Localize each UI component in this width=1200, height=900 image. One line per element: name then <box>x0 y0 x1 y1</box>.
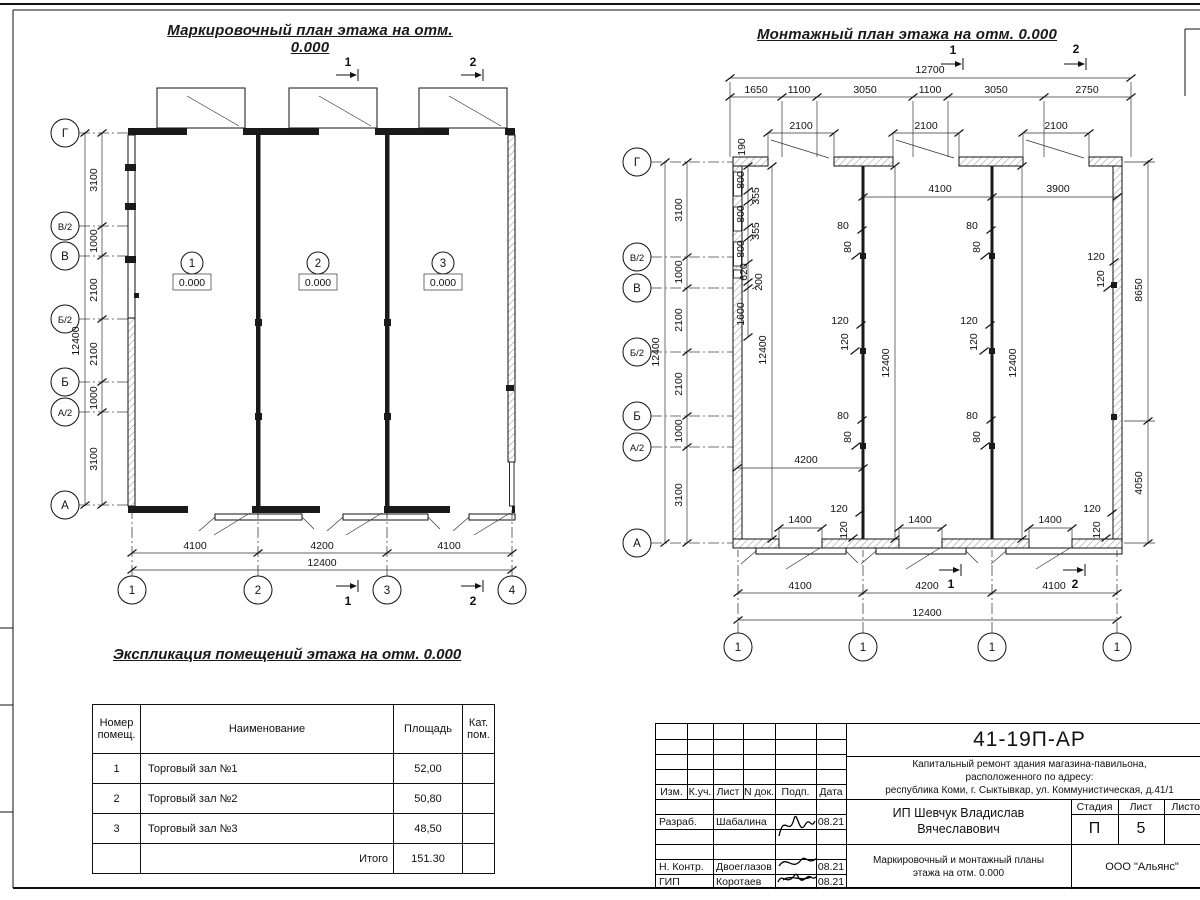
role-label: ГИП <box>656 874 713 889</box>
dim-label: 1400 <box>1038 514 1062 526</box>
dim-label: 200 <box>753 273 765 291</box>
sheet-value: 5 <box>1118 814 1164 844</box>
canopies <box>157 88 507 128</box>
dim-label: 355 <box>750 222 762 240</box>
col-data: Дата <box>816 784 846 799</box>
room-name-cell: Торговый зал №3 <box>141 814 394 844</box>
stage-value: П <box>1071 814 1118 844</box>
table-header-row: Номер помещ. Наименование Площадь Кат. п… <box>93 705 495 754</box>
col-header-number: Номер помещ. <box>93 705 141 754</box>
dim-label: 12400 <box>70 326 82 355</box>
dim-label: 2100 <box>673 372 685 396</box>
axis-label: 2 <box>255 585 261 597</box>
dim-label: 4100 <box>788 580 812 592</box>
dim-label: 4100 <box>928 183 952 195</box>
dim-label: 12700 <box>915 64 944 76</box>
dim-label: 4050 <box>1133 471 1145 495</box>
room-elevation: 0.000 <box>305 277 331 289</box>
title-block: Изм. К.уч. Лист N док. Подп. Дата Разраб… <box>655 723 1200 888</box>
right-dimensions: 8650 4050 <box>1124 159 1155 547</box>
grid-line <box>656 754 846 755</box>
description-line: Капитальный ремонт здания магазина-павил… <box>912 758 1146 771</box>
dim-label: 2100 <box>789 120 813 132</box>
total-label-cell: Итого <box>141 844 394 874</box>
section-label: 1 <box>345 55 352 69</box>
room-number: 2 <box>315 258 321 270</box>
section-label: 1 <box>950 43 957 57</box>
axis-label: В <box>633 283 641 295</box>
dim-label: 1400 <box>788 514 812 526</box>
signature <box>776 806 816 842</box>
dim-label: 120 <box>830 503 848 515</box>
room-num-cell: 1 <box>93 754 141 784</box>
dim-label: 4200 <box>915 580 939 592</box>
axis-label: В <box>61 251 69 263</box>
room-elevation: 0.000 <box>430 277 456 289</box>
dim-label: 1400 <box>908 514 932 526</box>
dim-label: 2750 <box>1075 84 1099 96</box>
axis-label: 1 <box>735 642 741 654</box>
dim-label: 800 <box>735 171 747 189</box>
dim-label: 2100 <box>1044 120 1068 132</box>
dim-label: 120 <box>1087 251 1105 263</box>
dim-label: 3100 <box>673 483 685 507</box>
dim-label: 12400 <box>880 348 892 377</box>
table-row: 2 Торговый зал №2 50,80 <box>93 784 495 814</box>
company-name: ООО "Альянс" <box>1071 844 1200 889</box>
grid-line <box>656 799 846 800</box>
dim-label: 80 <box>971 431 983 443</box>
walls <box>125 128 515 513</box>
axis-label: А <box>633 538 641 550</box>
dim-label: 3100 <box>673 198 685 222</box>
sheet-title: Маркировочный и монтажный планы этажа на… <box>846 844 1071 889</box>
column-dimensions: 4100 4200 4100 12400 1 1 1 1 <box>724 580 1131 661</box>
client-name: ИП Шевчук Владислав Вячеславович <box>846 799 1071 844</box>
dim-label: 190 <box>736 138 748 156</box>
dim-label: 120 <box>1091 521 1103 539</box>
role-date: 08.21 <box>816 874 846 889</box>
dim-label: 4200 <box>794 454 818 466</box>
dim-label: 120 <box>839 333 851 351</box>
room-area-cell: 50,80 <box>394 784 463 814</box>
room-cat-cell <box>463 784 495 814</box>
axis-label: Б <box>61 377 69 389</box>
dim-label: 1000 <box>673 260 685 284</box>
dim-label: 2100 <box>673 308 685 332</box>
description-line: республика Коми, г. Сыктывкар, ул. Комму… <box>885 784 1174 797</box>
room-markers: 1 0.000 2 0.000 3 0.000 <box>173 252 462 290</box>
room-num-cell: 2 <box>93 784 141 814</box>
entrance-aprons <box>199 513 515 535</box>
section-label: 2 <box>470 55 477 69</box>
stage-label: Стадия <box>1071 799 1118 814</box>
dim-label: 3100 <box>88 447 100 471</box>
dim-label: 620 <box>738 263 750 281</box>
grid-line <box>656 739 846 740</box>
dim-label: 355 <box>750 187 762 205</box>
section-label: 1 <box>948 577 955 591</box>
room-cat-cell <box>463 814 495 844</box>
grid-line <box>656 829 846 830</box>
room-area-cell: 48,50 <box>394 814 463 844</box>
dim-label: 1000 <box>88 386 100 410</box>
role-date: 08.21 <box>816 814 846 829</box>
col-kuch: К.уч. <box>687 784 713 799</box>
dim-label: 1000 <box>88 229 100 253</box>
dim-label: 120 <box>838 521 850 539</box>
column-dimensions: 4100 4200 4100 12400 1 2 3 4 <box>118 540 526 604</box>
dim-label: 800 <box>735 240 747 258</box>
doc-code: 41-19П-АР <box>846 724 1200 756</box>
grid-line <box>656 844 846 845</box>
dim-label: 80 <box>842 241 854 253</box>
dim-label: 80 <box>837 410 849 422</box>
axis-label: А <box>61 500 69 512</box>
dim-label: 12400 <box>307 557 336 569</box>
axis-label: Г <box>62 128 69 140</box>
section-label: 2 <box>470 594 477 608</box>
section-marks: 1 2 1 2 <box>336 55 483 608</box>
room-name-cell: Торговый зал №2 <box>141 784 394 814</box>
dim-label: 80 <box>971 241 983 253</box>
entrance-aprons <box>741 548 1122 569</box>
dim-label: 2100 <box>914 120 938 132</box>
role-label: Разраб. <box>656 814 713 829</box>
project-description: Капитальный ремонт здания магазина-павил… <box>846 756 1200 799</box>
col-ndoc: N док. <box>743 784 775 799</box>
dim-label: 80 <box>837 220 849 232</box>
explication-table: Номер помещ. Наименование Площадь Кат. п… <box>92 704 495 874</box>
col-izm: Изм. <box>656 784 687 799</box>
dim-label: 12400 <box>912 607 941 619</box>
col-header-name: Наименование <box>141 705 394 754</box>
section-label: 1 <box>345 594 352 608</box>
role-name: Коротаев <box>713 874 775 889</box>
dim-label: 4100 <box>1042 580 1066 592</box>
section-label: 2 <box>1072 577 1079 591</box>
dim-label: 3050 <box>984 84 1008 96</box>
dim-label: 1650 <box>744 84 768 96</box>
interior-dimensions: 4100 3900 12400 12400 4200 1400 1400 140… <box>733 163 1122 543</box>
dim-label: 3050 <box>853 84 877 96</box>
dim-label: 12400 <box>757 335 769 364</box>
table-row: 3 Торговый зал №3 48,50 <box>93 814 495 844</box>
row-axis-bubbles: Г В/2 В Б/2 Б А/2 А <box>623 148 651 557</box>
room-num-cell: 3 <box>93 814 141 844</box>
dim-label: 4100 <box>183 540 207 552</box>
dim-label: 12400 <box>650 337 662 366</box>
dim-label: 80 <box>966 410 978 422</box>
axis-label: Г <box>634 157 641 169</box>
dim-label: 120 <box>968 333 980 351</box>
axis-label: А/2 <box>630 443 644 454</box>
dim-label: 3900 <box>1046 183 1070 195</box>
col-podp: Подп. <box>775 784 816 799</box>
axis-label: 1 <box>129 585 135 597</box>
axis-label: В/2 <box>630 253 644 264</box>
door-swings-top <box>771 140 1084 158</box>
col-header-category: Кат. пом. <box>463 705 495 754</box>
role-label: Н. Контр. <box>656 859 713 874</box>
col-list: Лист <box>713 784 743 799</box>
row-dimensions: 3100 1000 2100 2100 1000 3100 12400 <box>650 159 692 547</box>
axis-label: 1 <box>1114 642 1120 654</box>
axis-label: В/2 <box>58 222 72 233</box>
grid-line <box>656 769 846 770</box>
axis-label: А/2 <box>58 408 72 419</box>
col-header-area: Площадь <box>394 705 463 754</box>
axis-label: 1 <box>860 642 866 654</box>
room-area-cell: 52,00 <box>394 754 463 784</box>
section-label: 2 <box>1073 42 1080 56</box>
room-cat-cell <box>463 754 495 784</box>
sheet-label: Лист <box>1118 799 1164 814</box>
marking-plan: Г В/2 В Б/2 Б А/2 А 3100 1000 2100 2100 … <box>51 55 526 608</box>
row-axis-bubbles: Г В/2 В Б/2 Б А/2 А <box>51 119 79 519</box>
dim-label: 800 <box>735 205 747 223</box>
axis-label: 3 <box>384 585 390 597</box>
dim-label: 4100 <box>437 540 461 552</box>
room-number: 3 <box>440 258 446 270</box>
dim-label: 2100 <box>88 278 100 302</box>
empty-cell <box>463 844 495 874</box>
dim-label: 2100 <box>88 342 100 366</box>
dim-label: 120 <box>1095 270 1107 288</box>
dim-label: 120 <box>960 315 978 327</box>
axis-label: 4 <box>509 585 516 597</box>
dim-label: 1600 <box>735 302 747 326</box>
dim-label: 12400 <box>1007 348 1019 377</box>
axis-label: Б <box>633 411 641 423</box>
dim-label: 1100 <box>919 84 942 96</box>
dim-label: 80 <box>966 220 978 232</box>
dim-label: 8650 <box>1133 278 1145 302</box>
dim-label: 1100 <box>788 84 811 96</box>
dim-label: 80 <box>842 431 854 443</box>
description-line: расположенного по адресу: <box>966 771 1094 784</box>
axis-label: 1 <box>989 642 995 654</box>
dim-label: 4200 <box>310 540 334 552</box>
dim-label: 1000 <box>673 419 685 443</box>
sheets-label: Листов <box>1164 799 1200 814</box>
axis-label: Б/2 <box>58 315 72 326</box>
mounting-plan: 12700 1650 1100 3050 1100 3050 2750 2100… <box>623 42 1155 661</box>
signature <box>775 852 819 890</box>
total-value-cell: 151.30 <box>394 844 463 874</box>
role-name: Шабалина <box>713 814 775 829</box>
top-dimensions: 12700 1650 1100 3050 1100 3050 2750 2100… <box>726 64 1136 157</box>
room-number: 1 <box>189 258 195 270</box>
empty-cell <box>93 844 141 874</box>
table-total-row: Итого 151.30 <box>93 844 495 874</box>
room-name-cell: Торговый зал №1 <box>141 754 394 784</box>
table-row: 1 Торговый зал №1 52,00 <box>93 754 495 784</box>
room-elevation: 0.000 <box>179 277 205 289</box>
role-date: 08.21 <box>816 859 846 874</box>
axis-label: Б/2 <box>630 348 644 359</box>
walls <box>733 157 1122 548</box>
dim-label: 120 <box>1083 503 1101 515</box>
dim-label: 3100 <box>88 168 100 192</box>
dim-label: 120 <box>831 315 849 327</box>
role-name: Двоеглазов <box>713 859 775 874</box>
